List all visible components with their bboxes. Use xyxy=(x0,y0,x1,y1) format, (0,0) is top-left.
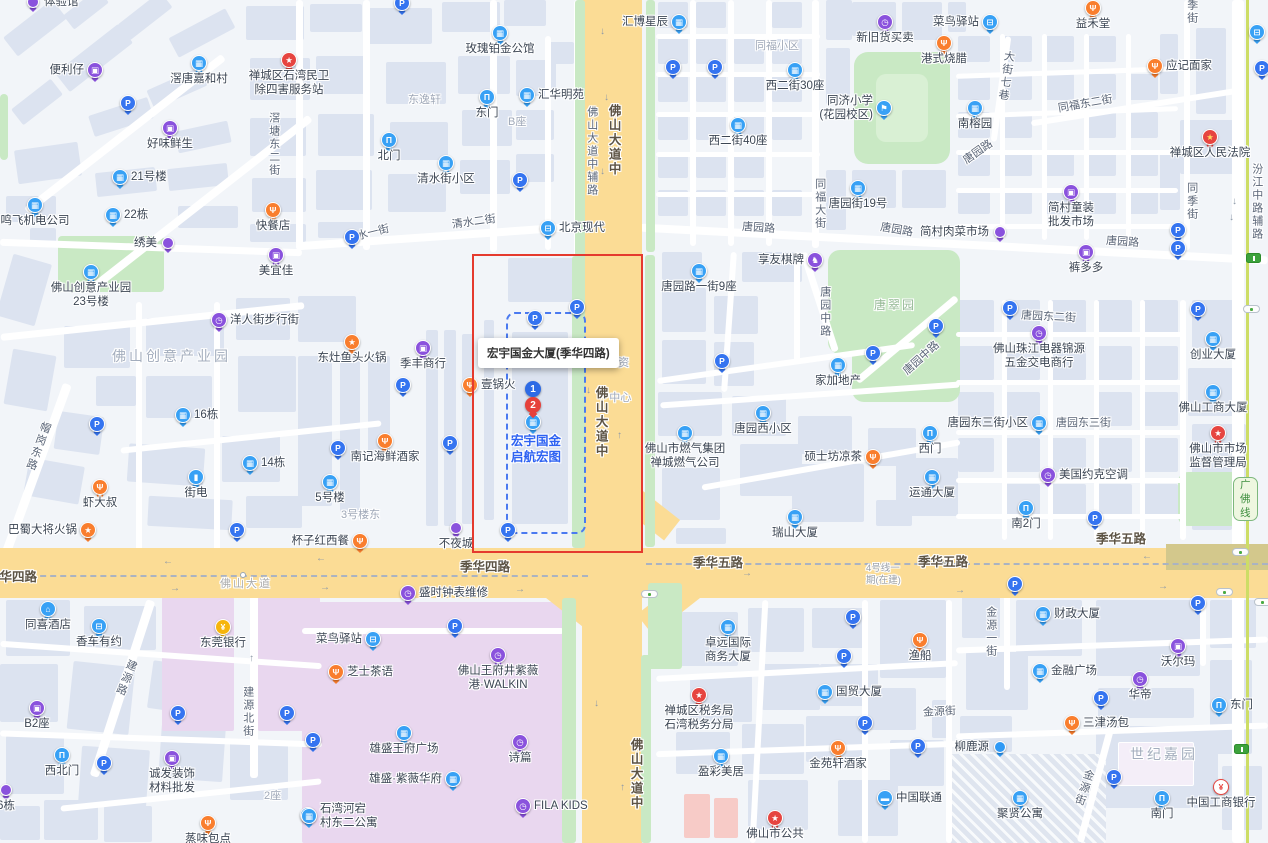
poi-label: 东莞银行 xyxy=(200,636,246,650)
poi-label: 菜鸟驿站 xyxy=(316,632,362,646)
area-name-label: 佛山创意产业园 xyxy=(112,348,231,366)
minor-road xyxy=(545,36,551,250)
building-block xyxy=(734,76,764,102)
result-tooltip[interactable]: 宏宇国金大厦(季华四路) xyxy=(478,338,619,368)
street-name-label: 唐园路 xyxy=(1106,235,1140,251)
bld-icon: ▦ xyxy=(787,62,803,78)
lane-arrow: ↓ xyxy=(600,26,605,37)
shop-icon: ▣ xyxy=(1170,638,1186,654)
poi-label: 家加地产 xyxy=(815,374,861,388)
building-block xyxy=(676,528,726,544)
poi-label: FILA KIDS xyxy=(534,799,588,813)
bld-icon: ▦ xyxy=(1012,790,1028,806)
bld-icon: ▦ xyxy=(755,405,771,421)
road-name-label: 佛山大道中 xyxy=(627,738,643,811)
road-name-label: 季华四路 xyxy=(0,570,37,586)
road-name-label: 季华五路 xyxy=(1096,532,1146,548)
poi-label: 南榕园 xyxy=(958,117,993,131)
building-block xyxy=(696,76,726,102)
area-name-label: 东逸轩 xyxy=(408,94,441,108)
poi-label: 聚贤公寓 xyxy=(997,807,1043,821)
poi-label: 渔船 xyxy=(909,649,932,663)
shop-icon: ▣ xyxy=(87,62,103,78)
guangfo-metro-line xyxy=(1246,0,1249,843)
minor-road xyxy=(363,0,370,250)
bld-icon: ▦ xyxy=(691,263,707,279)
bld-icon: ▦ xyxy=(242,455,258,471)
building-block xyxy=(238,356,296,412)
lane-arrow: ← xyxy=(316,553,326,564)
building-block xyxy=(1142,300,1178,334)
poi-label: 应记面家 xyxy=(1166,59,1212,73)
building-block xyxy=(0,254,52,327)
hotel-icon: ⌂ xyxy=(40,601,56,617)
poi-label: 唐园西小区 xyxy=(734,422,792,436)
poi-label: 5号楼 xyxy=(315,491,344,505)
star-o-icon: ★ xyxy=(344,334,360,350)
poi-label: 瑞山大厦 xyxy=(772,526,818,540)
minor-road xyxy=(1042,34,1047,240)
building-block xyxy=(748,608,804,652)
traffic-light-icon xyxy=(1254,598,1268,606)
bld-icon: ▦ xyxy=(1035,606,1051,622)
poi-label: 好味鲜生 xyxy=(147,137,193,151)
lane-arrow: ← xyxy=(498,555,508,566)
gate-icon: Π xyxy=(54,747,70,763)
building-block xyxy=(826,0,852,40)
p-icon: P xyxy=(714,353,730,369)
p-icon: P xyxy=(442,435,458,451)
food-icon: Ψ xyxy=(830,740,846,756)
poi-label: 巴蜀大将火锅 xyxy=(8,523,77,537)
poi-label: 盈彩美居 xyxy=(698,765,744,779)
poi-label: 21号楼 xyxy=(131,170,167,184)
park-name-label: 唐翠园 xyxy=(874,298,916,313)
metro-line-badge: 广佛线 xyxy=(1233,477,1258,521)
p-icon: P xyxy=(845,609,861,625)
poi-label: 蒸味包点 xyxy=(185,832,231,843)
drop-p-icon xyxy=(0,784,12,796)
building-block xyxy=(714,798,738,838)
bld-icon: ▦ xyxy=(322,474,338,490)
food-icon: Ψ xyxy=(377,433,393,449)
building-block xyxy=(798,416,852,454)
poi-label: 汇华明苑 xyxy=(538,88,584,102)
poi-label: 便利仔 xyxy=(50,63,85,77)
clk-icon: ◷ xyxy=(877,14,893,30)
building-block xyxy=(1050,484,1086,518)
park-green-area xyxy=(0,94,8,160)
building-block xyxy=(0,664,58,722)
poi-label: 裤多多 xyxy=(1069,261,1104,275)
poi-label: 禅城区石湾民卫 除四害服务站 xyxy=(249,69,330,98)
poi-label: 简村童装 批发市场 xyxy=(1048,201,1094,230)
bld-icon: ▦ xyxy=(396,725,412,741)
area-name-label: B座 xyxy=(508,116,526,130)
poi-label: 石湾河宕 村东二公寓 xyxy=(320,802,378,831)
bld-icon: ▦ xyxy=(713,748,729,764)
food-icon: Ψ xyxy=(328,664,344,680)
shop-icon: ▣ xyxy=(162,120,178,136)
lane-arrow: → xyxy=(1158,581,1168,592)
poi-label: 佛山王府井紫薇 港·WALKIN xyxy=(458,664,539,693)
poi-label: 港式烧腊 xyxy=(921,52,967,66)
poi-label: 佛山珠江电器锦源 五金交电商行 xyxy=(993,342,1085,371)
bld-icon: ▦ xyxy=(1205,331,1221,347)
building-block xyxy=(1050,438,1086,472)
poi-label: 国贸大厦 xyxy=(836,685,882,699)
poi-label: 简村肉菜市场 xyxy=(920,225,989,239)
road-name-label: 佛山大道中 xyxy=(605,104,621,177)
poi-label: 西二街30座 xyxy=(766,79,825,93)
street-name-label: 唐园路 xyxy=(742,221,776,237)
bld-icon: ▦ xyxy=(191,55,207,71)
poi-label: 运通大厦 xyxy=(909,486,955,500)
star-o-icon: ★ xyxy=(80,522,96,538)
poi-label: 禅城区人民法院 xyxy=(1170,146,1251,160)
poi-label: 快餐店 xyxy=(256,219,291,233)
bld-icon: ▦ xyxy=(492,25,508,41)
road-name-label: 季华五路 xyxy=(693,556,743,572)
marker-1[interactable]: 1 xyxy=(525,381,541,397)
lane-arrow: ↓ xyxy=(604,92,609,103)
p-icon: P xyxy=(89,416,105,432)
poi-label: 西北门 xyxy=(45,764,80,778)
lane-arrow: ← xyxy=(940,556,950,567)
building-block xyxy=(838,780,898,836)
building-block xyxy=(958,438,994,472)
minor-road xyxy=(956,332,1184,337)
poi-label: 享友棋牌 xyxy=(758,253,804,267)
poi-label: 6栋 xyxy=(0,799,15,813)
icbc-icon: ¥ xyxy=(1213,779,1229,795)
poi-label: 美国约克空调 xyxy=(1059,468,1128,482)
street-name-label: 滘塘东二街 xyxy=(266,112,280,177)
minor-road xyxy=(656,34,820,39)
gate-icon: Π xyxy=(922,425,938,441)
gate-icon: Π xyxy=(479,89,495,105)
lane-arrow: → xyxy=(170,583,180,594)
building-block xyxy=(876,500,912,526)
p-icon: P xyxy=(1170,240,1186,256)
p-icon: P xyxy=(330,440,346,456)
poi-label: 鸣飞机电公司 xyxy=(1,214,70,228)
poi-label: 东门 xyxy=(1230,698,1253,712)
poi-label: 佛山创意产业园 23号楼 xyxy=(51,281,132,310)
bld-icon: ▦ xyxy=(27,197,43,213)
boundary-name-label: 佛山大道 xyxy=(220,578,272,592)
poi-label: 同喜酒店 xyxy=(25,618,71,632)
building-block xyxy=(966,652,1028,710)
minor-road xyxy=(956,430,1184,435)
poi-label: B2座 xyxy=(24,717,50,731)
traffic-light-icon xyxy=(1243,305,1260,313)
poi-label: 汇博星辰 xyxy=(622,15,668,29)
food-icon: Ψ xyxy=(1064,715,1080,731)
poi-label: 14栋 xyxy=(261,456,285,470)
poi-label: 财政大厦 xyxy=(1054,607,1100,621)
poi-label: 芝士茶语 xyxy=(347,665,393,679)
building-block xyxy=(169,8,236,57)
street-name-label: 金源一街 xyxy=(983,606,997,658)
p-icon: P xyxy=(447,618,463,634)
bld-icon: ▦ xyxy=(445,771,461,787)
clk-icon: ◷ xyxy=(1031,325,1047,341)
building-block xyxy=(3,349,56,412)
marker-2[interactable]: 2 xyxy=(525,397,541,413)
food-icon: Ψ xyxy=(912,632,928,648)
gate-icon: Π xyxy=(1154,790,1170,806)
minor-road xyxy=(946,600,952,843)
building-block xyxy=(1096,300,1132,334)
poi-label: 柳鹿源 xyxy=(955,740,990,754)
minor-road xyxy=(214,302,220,554)
building-block xyxy=(1142,392,1178,426)
building-block xyxy=(1096,346,1132,380)
p-icon: P xyxy=(395,377,411,393)
govt-icon: ★ xyxy=(1202,129,1218,145)
poi-label: 街电 xyxy=(185,486,208,500)
poi-label: 卓远国际 商务大厦 xyxy=(705,636,751,665)
clk-icon: ◷ xyxy=(515,798,531,814)
poi-label: 体验馆 xyxy=(44,0,79,9)
poi-label: 16栋 xyxy=(194,408,218,422)
poi-label: 雄盛·紫薇华府 xyxy=(369,772,442,786)
shop-icon: ▣ xyxy=(29,700,45,716)
food-icon: Ψ xyxy=(352,533,368,549)
bld-icon: ▦ xyxy=(671,14,687,30)
poi-label: 同济小学 (花园校区) xyxy=(819,94,873,123)
minor-road xyxy=(1232,0,1244,843)
p-icon: P xyxy=(1254,60,1268,76)
street-name-label: 同季街 xyxy=(1184,0,1198,25)
building-block xyxy=(958,346,994,380)
p-icon: P xyxy=(1087,510,1103,526)
p-icon: P xyxy=(1093,690,1109,706)
metro-station-icon xyxy=(1234,744,1249,754)
p-icon: P xyxy=(665,59,681,75)
lane-arrow: ↑ xyxy=(249,653,254,664)
bld-icon: ▦ xyxy=(519,87,535,103)
bld-icon: ▦ xyxy=(817,684,833,700)
building-block xyxy=(1096,438,1132,472)
car-icon: ⊟ xyxy=(91,618,107,634)
poi-label: 三津汤包 xyxy=(1083,716,1129,730)
poi-label: 盛时钟表维修 xyxy=(419,586,488,600)
highlight-red-box xyxy=(472,254,643,553)
traffic-light-icon xyxy=(1232,548,1249,556)
poi-label: 22栋 xyxy=(124,208,148,222)
poi-label: 佛山市燃气集团 禅城燃气公司 xyxy=(645,442,726,471)
poi-label: 东灶鱼头火锅 xyxy=(318,351,387,365)
poi-label: 虾大叔 xyxy=(83,496,118,510)
building-block xyxy=(246,496,302,528)
car-icon: ⊟ xyxy=(540,220,556,236)
bld-icon: ▦ xyxy=(1205,384,1221,400)
lane-arrow: ← xyxy=(163,556,173,567)
bld-icon: ▦ xyxy=(720,619,736,635)
bld-icon: ▦ xyxy=(677,425,693,441)
poi-label: 西二街40座 xyxy=(709,134,768,148)
poi-label: 佛山市市场 监督管理局 xyxy=(1189,442,1247,471)
area-name-label: 3号楼东 xyxy=(341,509,380,523)
p-icon: P xyxy=(170,705,186,721)
building-block xyxy=(658,114,688,140)
building-block xyxy=(96,376,136,406)
building-block xyxy=(1004,438,1040,472)
building-block xyxy=(684,794,710,838)
school-icon: ⚑ xyxy=(876,100,892,116)
street-name-label: 同季街 xyxy=(1184,182,1198,221)
poi-label: 美宜佳 xyxy=(259,264,294,278)
poi-label: 洋人街步行街 xyxy=(230,313,299,327)
minor-road xyxy=(656,192,820,197)
bld-icon: ▦ xyxy=(83,264,99,280)
poi-label: 雄盛王府广场 xyxy=(370,742,439,756)
bld-icon: ▦ xyxy=(730,117,746,133)
bank-icon: ¥ xyxy=(215,619,231,635)
p-icon: P xyxy=(836,648,852,664)
lane-arrow: ↑ xyxy=(620,782,625,793)
clk-icon: ◷ xyxy=(1132,671,1148,687)
clk-icon: ◷ xyxy=(1040,467,1056,483)
metro-station-icon xyxy=(1246,253,1261,263)
minor-road xyxy=(794,252,800,362)
knight-icon: ♞ xyxy=(807,252,823,268)
poi-label: 唐园街19号 xyxy=(829,197,888,211)
poi-label: 沃尔玛 xyxy=(1161,655,1196,669)
bld-icon: ▦ xyxy=(830,357,846,373)
bld-icon: ▦ xyxy=(112,169,128,185)
bld-icon: ▦ xyxy=(787,509,803,525)
poi-label: 香车有约 xyxy=(76,635,122,649)
poi-label: 菜鸟驿站 xyxy=(933,15,979,29)
poi-label: 中国联通 xyxy=(896,791,942,805)
street-name-label: 金源街 xyxy=(923,705,957,720)
map-canvas[interactable]: 滘塘东二街清水一街清水二街佛山大道中辅路佛山大道中佛山大道中佛山大道中东逸轩B座… xyxy=(0,0,1268,843)
lane-arrow: ↓ xyxy=(1229,212,1234,223)
building-block xyxy=(504,0,546,26)
building-block xyxy=(11,79,63,126)
shop-icon: ▣ xyxy=(268,247,284,263)
street-name-label: 建源北街 xyxy=(240,686,254,738)
area-name-label: 同福小区 xyxy=(755,40,799,54)
building-block xyxy=(958,300,994,334)
building-block xyxy=(658,76,688,102)
poi-label: 诗篇 xyxy=(509,751,532,765)
building-block xyxy=(1142,484,1178,518)
star-r-icon: ★ xyxy=(281,52,297,68)
food-icon: Ψ xyxy=(200,815,216,831)
building-block xyxy=(662,288,706,332)
p-icon: P xyxy=(865,345,881,361)
star-r-icon: ★ xyxy=(767,810,783,826)
p-icon: P xyxy=(910,738,926,754)
food-icon: Ψ xyxy=(92,479,108,495)
poi-label: 益禾堂 xyxy=(1076,17,1111,31)
p-icon: P xyxy=(120,95,136,111)
metro-overlay-road xyxy=(1166,544,1268,570)
minor-road xyxy=(956,514,1184,519)
shop-icon: ▣ xyxy=(1063,184,1079,200)
shop-icon: ▣ xyxy=(164,750,180,766)
batt-icon: ▮ xyxy=(188,469,204,485)
clk-icon: ◷ xyxy=(400,585,416,601)
star-r-icon: ★ xyxy=(1210,425,1226,441)
poi-label: 佛山市公共 xyxy=(746,827,804,841)
p-icon: P xyxy=(707,59,723,75)
area-name-label: 2座 xyxy=(264,790,281,804)
star-r-icon: ★ xyxy=(691,687,707,703)
bld-icon: ▦ xyxy=(175,407,191,423)
bus-icon: ⊟ xyxy=(1249,24,1265,40)
poi-label: 滘唐嘉和村 xyxy=(170,72,228,86)
bld-icon: ▦ xyxy=(1031,415,1047,431)
gate-icon: Π xyxy=(1211,697,1227,713)
lane-arrow: → xyxy=(742,568,752,579)
poi-label: 北门 xyxy=(378,149,401,163)
p-icon: P xyxy=(229,522,245,538)
lane-arrow: ↓ xyxy=(1232,196,1237,207)
building-block xyxy=(310,4,362,32)
truck-icon: ⊟ xyxy=(365,631,381,647)
clk-icon: ◷ xyxy=(490,647,506,663)
p-icon: P xyxy=(1190,301,1206,317)
poi-label: 玫瑰铂金公馆 xyxy=(466,42,535,56)
building-block xyxy=(340,352,360,512)
poi-label: 新旧货买卖 xyxy=(856,31,914,45)
p-icon: P xyxy=(928,318,944,334)
card-icon: ▬ xyxy=(877,790,893,806)
drop-b-icon xyxy=(994,741,1006,753)
street-name-label: 佛山大道中辅路 xyxy=(584,106,598,197)
lane-arrow: ↓ xyxy=(594,698,599,709)
p-icon: P xyxy=(1170,222,1186,238)
building-block xyxy=(118,0,173,41)
drop-p-icon xyxy=(450,522,462,534)
lane-arrow: → xyxy=(320,582,330,593)
lane-arrow: ← xyxy=(1142,551,1152,562)
building-block xyxy=(1142,438,1178,472)
street-name-label: 汾江中路辅路 xyxy=(1249,163,1263,241)
street-name-label: 唐园东三街 xyxy=(1056,417,1111,431)
poi-label: 南记海鲜酒家 xyxy=(351,450,420,464)
building-block xyxy=(1142,346,1178,380)
hongyu-poi-title[interactable]: 宏宇国金启航宏图 xyxy=(511,433,561,466)
poi-label: 佛山工商大厦 xyxy=(1179,401,1248,415)
p-icon: P xyxy=(1007,576,1023,592)
poi-label: 华帝 xyxy=(1129,688,1152,702)
poi-label: 唐园路一街9座 xyxy=(661,280,736,294)
minor-road xyxy=(136,302,142,552)
minor-road xyxy=(956,380,1184,385)
street-name-label: 唐园中路 xyxy=(817,286,831,338)
building-block xyxy=(772,114,802,140)
drop-p-icon xyxy=(994,226,1006,238)
food-icon: Ψ xyxy=(1085,0,1101,16)
poi-label: 金融广场 xyxy=(1051,664,1097,678)
poi-label: 南2门 xyxy=(1011,517,1040,531)
p-icon: P xyxy=(1002,300,1018,316)
food-icon: Ψ xyxy=(936,35,952,51)
clk-icon: ◷ xyxy=(211,312,227,328)
poi-label: 清水街小区 xyxy=(417,172,475,186)
p-icon: P xyxy=(96,755,112,771)
bus-icon: ⊟ xyxy=(982,14,998,30)
poi-label: 杯子红西餐 xyxy=(292,534,350,548)
street-name-label: 唐园东二街 xyxy=(1021,310,1077,327)
drop-p-icon xyxy=(27,0,39,8)
